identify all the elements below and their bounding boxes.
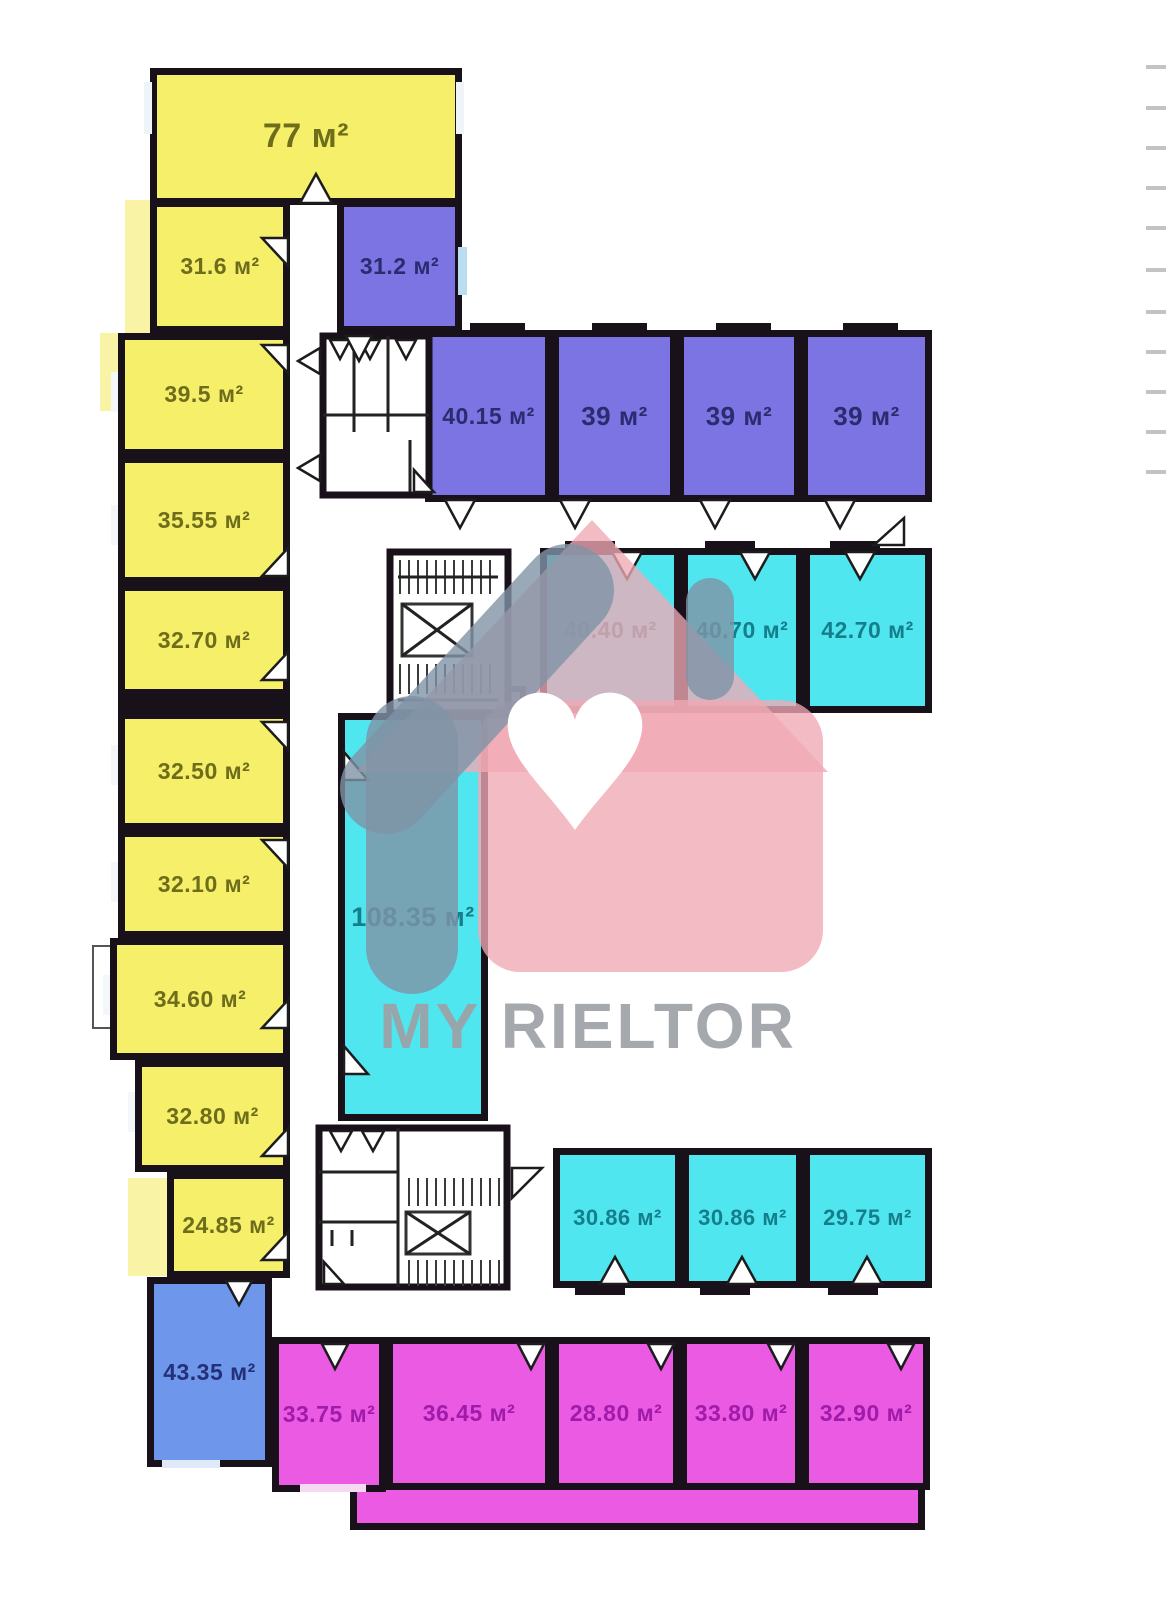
room-24-85: 24.85 м²	[167, 1172, 290, 1278]
room-40-15: 40.15 м²	[425, 330, 552, 502]
area-label: 40.40 м²	[564, 617, 657, 644]
area-label: 33.80 м²	[695, 1400, 788, 1427]
wall-tab	[705, 541, 755, 549]
area-label: 33.75 м²	[283, 1401, 376, 1428]
wall-tab	[565, 541, 615, 549]
area-label: 40.15 м²	[442, 403, 535, 430]
area-label: 36.45 м²	[423, 1400, 516, 1427]
area-label: 40.70 м²	[696, 617, 789, 644]
room-36-45: 36.45 м²	[386, 1337, 552, 1490]
room-39-b: 39 м²	[677, 330, 801, 502]
room-42-70: 42.70 м²	[803, 548, 932, 713]
room-30-86-a: 30.86 м²	[553, 1148, 682, 1288]
area-label: 39.5 м²	[164, 381, 243, 408]
area-label: 28.80 м²	[570, 1400, 663, 1427]
wall-tab	[716, 323, 771, 331]
sanitary-block	[298, 336, 434, 495]
area-label: 77 м²	[263, 117, 349, 156]
area-label: 32.10 м²	[158, 871, 251, 898]
area-label: 24.85 м²	[182, 1212, 275, 1239]
room-29-75: 29.75 м²	[803, 1148, 932, 1288]
wall-tab	[575, 1287, 625, 1295]
area-label: 32.50 м²	[158, 758, 251, 785]
room-40-40: 40.40 м²	[540, 548, 681, 713]
room-35-55: 35.55 м²	[118, 456, 290, 584]
wall-tab	[592, 323, 647, 331]
room-39-a: 39 м²	[552, 330, 677, 502]
window	[111, 505, 118, 545]
window	[111, 862, 118, 902]
ruler-ticks	[1146, 67, 1166, 472]
room-31-2: 31.2 м²	[337, 200, 462, 333]
room-32-50: 32.50 м²	[118, 712, 290, 830]
area-label: 31.2 м²	[360, 253, 439, 280]
area-label: 42.70 м²	[821, 617, 914, 644]
area-label: 29.75 м²	[823, 1205, 912, 1231]
room-32-90: 32.90 м²	[802, 1337, 930, 1490]
room-39-5: 39.5 м²	[118, 333, 290, 456]
area-label: 39 м²	[581, 401, 648, 432]
window	[300, 1484, 366, 1492]
corridor-nook	[498, 686, 526, 714]
room-33-75: 33.75 м²	[272, 1337, 386, 1492]
wall-tab	[700, 1287, 750, 1295]
window	[458, 247, 467, 295]
room-31-6: 31.6 м²	[150, 200, 290, 333]
window	[144, 82, 152, 134]
stairs-elevator-block	[390, 552, 508, 713]
room-32-70: 32.70 м²	[118, 584, 290, 696]
area-label: 32.90 м²	[820, 1400, 913, 1427]
balcony-strip	[125, 200, 151, 333]
window	[162, 1460, 220, 1468]
wall-tab	[470, 323, 525, 331]
area-label: 32.80 м²	[166, 1103, 259, 1130]
window	[128, 1092, 135, 1132]
wall-tab	[828, 1287, 878, 1295]
window	[111, 745, 118, 785]
area-label: 108.35 м²	[351, 902, 475, 933]
wall-tab	[843, 323, 898, 331]
area-label: 31.6 м²	[180, 253, 259, 280]
room-39-c: 39 м²	[801, 330, 932, 502]
area-label: 34.60 м²	[154, 986, 247, 1013]
wall-tab	[830, 541, 880, 549]
room-34-60: 34.60 м²	[110, 938, 290, 1060]
area-label: 30.86 м²	[698, 1205, 787, 1231]
room-32-10: 32.10 м²	[118, 830, 290, 938]
room-43-35: 43.35 м²	[147, 1277, 272, 1467]
area-label: 32.70 м²	[158, 627, 251, 654]
area-label: 39 м²	[833, 401, 900, 432]
room-40-70: 40.70 м²	[681, 548, 803, 713]
area-label: 30.86 м²	[573, 1205, 662, 1231]
room-108-35: 108.35 м²	[338, 713, 488, 1121]
wall-segment	[118, 696, 290, 712]
area-label: 39 м²	[706, 401, 773, 432]
window	[103, 975, 110, 1015]
room-30-86-b: 30.86 м²	[682, 1148, 803, 1288]
balcony-strip	[128, 1178, 168, 1276]
room-32-80: 32.80 м²	[135, 1060, 290, 1172]
stairs-elevator-block-lower	[319, 1128, 542, 1287]
window	[456, 82, 464, 134]
room-77: 77 м²	[150, 68, 462, 205]
floor-plan: 77 м² 31.6 м² 39.5 м² 35.55 м² 32.70 м² …	[0, 0, 1167, 1600]
room-28-80: 28.80 м²	[552, 1337, 680, 1490]
room-33-80: 33.80 м²	[680, 1337, 802, 1490]
window	[111, 372, 118, 412]
area-label: 35.55 м²	[158, 507, 251, 534]
area-label: 43.35 м²	[163, 1359, 256, 1386]
